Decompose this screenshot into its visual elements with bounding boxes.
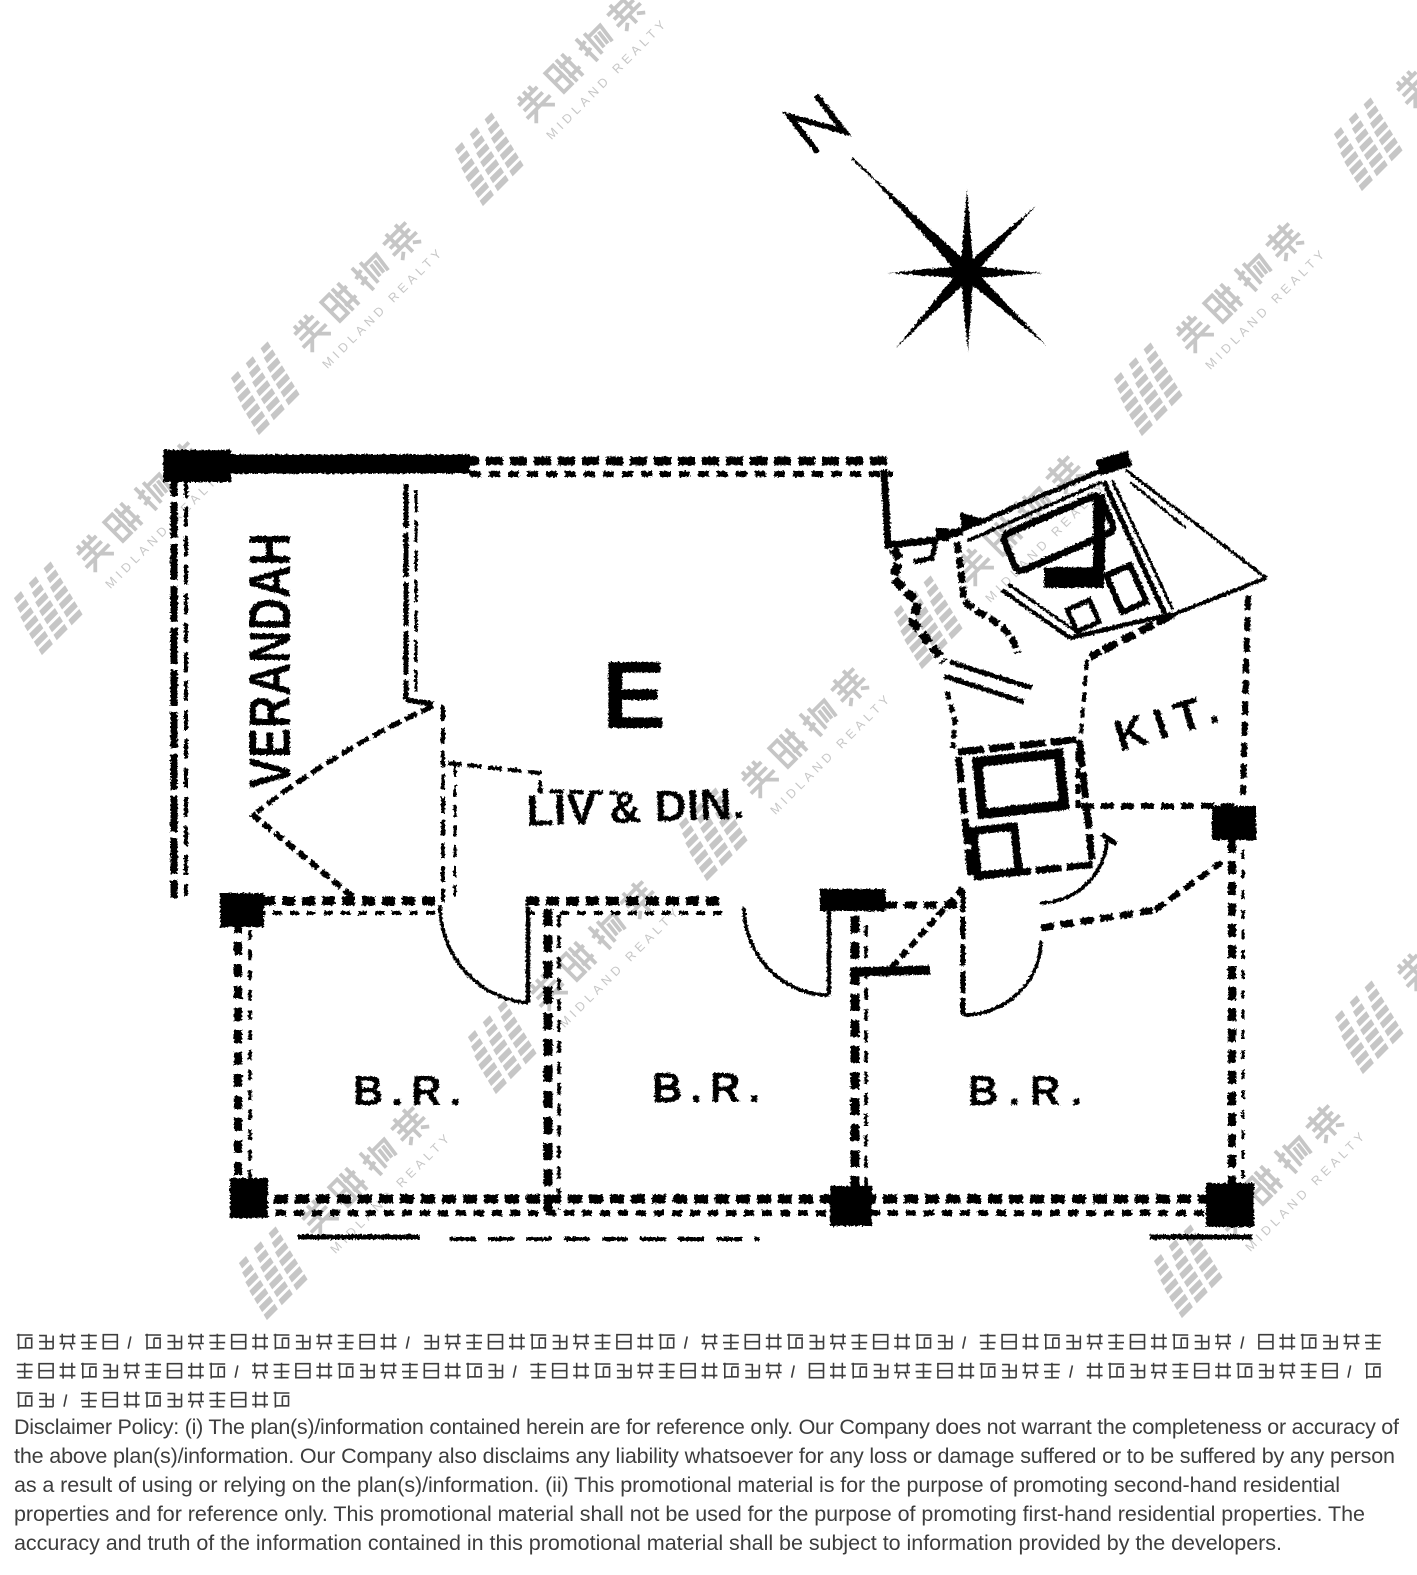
svg-text:the above plan(s)/information.: the above plan(s)/information. Our Compa…: [14, 1444, 1395, 1468]
svg-text:VERANDAH: VERANDAH: [238, 533, 303, 788]
svg-text:B.R.: B.R.: [968, 1067, 1092, 1114]
svg-text:B.R.: B.R.: [652, 1064, 768, 1111]
svg-text:B.R.: B.R.: [353, 1067, 469, 1114]
svg-text:E: E: [602, 642, 666, 749]
svg-text:accuracy and truth of the info: accuracy and truth of the information co…: [14, 1531, 1282, 1555]
svg-text:LIV & DIN.: LIV & DIN.: [526, 779, 746, 836]
svg-text:properties and for reference o: properties and for reference only. This …: [14, 1502, 1365, 1526]
svg-text:Disclaimer Policy: (i) The pla: Disclaimer Policy: (i) The plan(s)/infor…: [14, 1415, 1399, 1439]
svg-text:as a result of using or relyin: as a result of using or relying on the p…: [14, 1473, 1340, 1497]
